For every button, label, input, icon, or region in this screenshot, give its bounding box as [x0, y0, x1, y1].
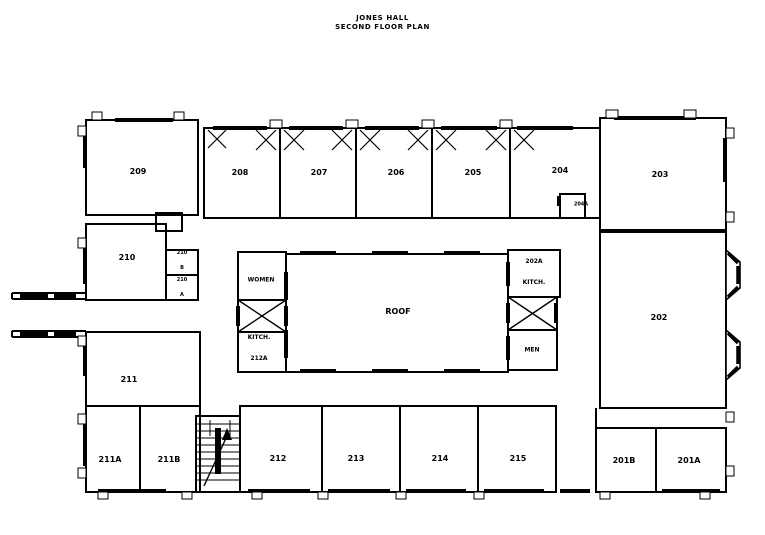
room-label-201b: 201B	[613, 457, 636, 465]
room-label-207: 207	[311, 169, 328, 177]
kitchen-212a-label-line1: KITCH.	[248, 334, 271, 341]
roof-label: ROOF	[385, 308, 410, 316]
bay-windows-202	[726, 250, 740, 380]
room-label-208: 208	[232, 169, 249, 177]
room-label-201a: 201A	[678, 457, 701, 465]
room-214-walls	[400, 406, 478, 492]
elevator-right	[506, 297, 558, 330]
floor-plan-page: JONES HALL SECOND FLOOR PLAN	[0, 0, 765, 535]
room-210-walls	[86, 224, 166, 300]
west-wing-corridor-walls	[12, 293, 86, 337]
room-212-walls	[240, 406, 322, 492]
room-label-210a: 210 A	[177, 268, 187, 308]
kitchen-202a-label: 202A KITCH.	[523, 244, 546, 300]
window-bands	[20, 116, 727, 493]
room-label-204a: 204A	[574, 203, 588, 208]
room-211-walls	[86, 332, 200, 406]
room-label-203: 203	[652, 171, 669, 179]
room-label-213: 213	[348, 455, 365, 463]
room-label-212: 212	[270, 455, 287, 463]
kitchen-212a-label-line2: 212A	[248, 355, 271, 362]
room-label-210a-line1: 210	[177, 278, 187, 283]
womens-room-label: WOMEN	[248, 277, 275, 284]
room-211b-walls	[140, 406, 200, 492]
room-label-211a: 211A	[99, 456, 122, 464]
staircase	[196, 420, 240, 486]
room-walls	[12, 118, 726, 492]
room-label-210: 210	[119, 254, 136, 262]
room-label-211b: 211B	[158, 456, 181, 464]
kitchen-202a-label-line2: KITCH.	[523, 279, 546, 286]
room-211a-walls	[86, 406, 140, 492]
room-label-211: 211	[121, 376, 138, 384]
room-label-210b-line1: 210	[177, 251, 187, 256]
room-label-202: 202	[651, 314, 668, 322]
kitchen-212a-label: KITCH. 212A	[248, 320, 271, 376]
room-label-209: 209	[130, 168, 147, 176]
mens-room-label: MEN	[524, 347, 539, 354]
room-label-206: 206	[388, 169, 405, 177]
room-label-204: 204	[552, 167, 569, 175]
room-label-215: 215	[510, 455, 527, 463]
kitchen-202a-label-line1: 202A	[523, 258, 546, 265]
room-label-210a-line2: A	[177, 293, 187, 298]
room-215-walls	[478, 406, 556, 492]
room-label-214: 214	[432, 455, 449, 463]
door-swings	[208, 130, 534, 150]
room-label-205: 205	[465, 169, 482, 177]
room-213-walls	[322, 406, 400, 492]
